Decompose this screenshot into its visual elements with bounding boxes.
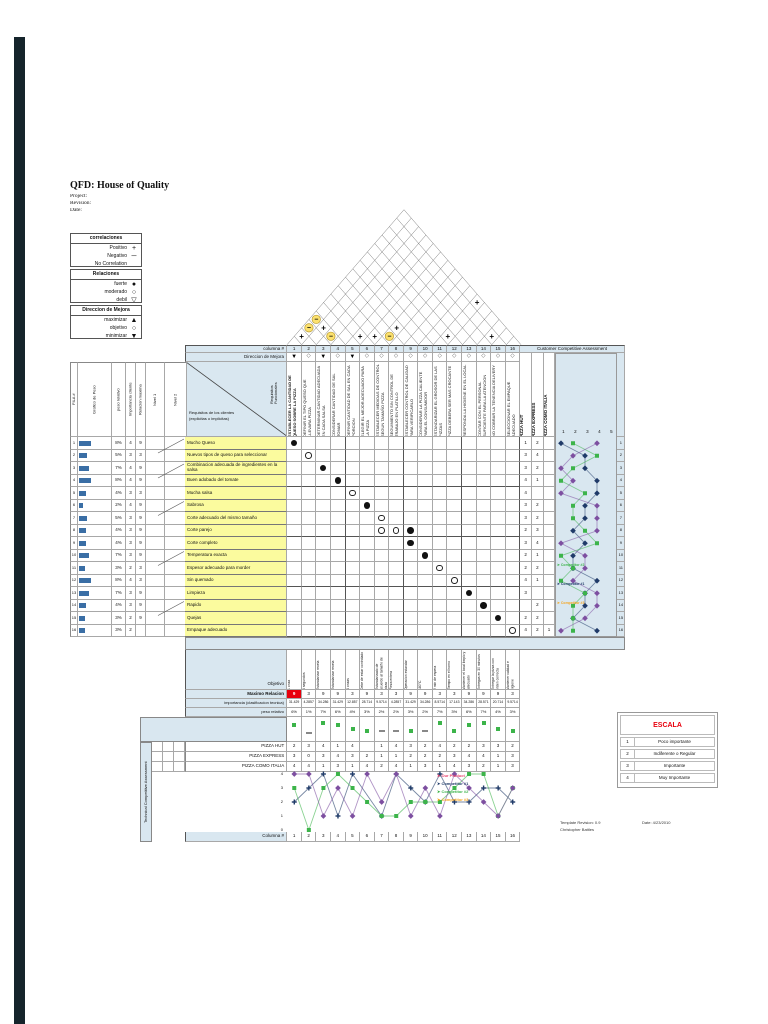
matrix-cell [331, 500, 346, 513]
matrix-cell [346, 525, 361, 538]
matrix-cell [346, 475, 361, 488]
tca-value-cell: 2 [375, 762, 390, 772]
matrix-cell [477, 612, 492, 625]
cca-hut-cell: 4 [520, 575, 532, 588]
direccion-header-label: Direccion de Mejora [185, 353, 287, 362]
matrix-cell [360, 487, 375, 500]
direction-of-improvement-cell: ▼ [316, 353, 331, 362]
tca-strip: Technical Competitive Assessment [140, 742, 152, 842]
relacion-maxima-cell: 9 [136, 437, 146, 450]
svg-text:+: + [490, 332, 495, 341]
requisito-column-title: SEGUIMIENTO SIN CONTROL DE TRABAJO EN PL… [389, 362, 403, 437]
peso-bar-cell [78, 537, 112, 550]
legend-symbol-icon: ─ [130, 253, 138, 260]
weight-dash-icon [393, 730, 399, 732]
cca-express-cell [532, 587, 544, 600]
moderate-relationship-icon [436, 565, 443, 572]
matrix-cell [404, 587, 419, 600]
strong-relationship-icon [422, 552, 429, 559]
weight-dash-icon [379, 730, 385, 732]
tca-value-cell: 3 [418, 762, 433, 772]
requisito-column-title: DEFINIR EL TIPO QUESO QUE LLEVARA PIZZA [302, 362, 316, 437]
cca-italia-cell [544, 537, 556, 550]
matrix-cell [346, 550, 361, 563]
matrix-cell [287, 612, 302, 625]
matrix-cell [375, 450, 390, 463]
left-header-label: FILA # [71, 363, 77, 436]
objetivo-cell: Tiempo en el horno [447, 650, 462, 690]
matrix-cell [418, 600, 433, 613]
importancia-cell: 4 [126, 575, 136, 588]
matrix-cell [477, 575, 492, 588]
tca-row-label: PIZZA EXPRESS [185, 752, 287, 762]
escala-row: 3Importante [620, 761, 715, 771]
tca-value-cell: 3 [346, 752, 361, 762]
matrix-cell [302, 587, 317, 600]
columna-number-cell: 1 [287, 345, 302, 353]
matrix-cell [346, 462, 361, 475]
matrix-cell [375, 600, 390, 613]
matrix-cell [331, 537, 346, 550]
fila-number-cell: 10 [70, 550, 78, 563]
technical-chart-ytick: 4 [272, 771, 285, 777]
tca-value-cell: 2 [418, 752, 433, 762]
requisito-column-header: NO COBRAR LA TENENCIA DELIVERY [491, 362, 506, 437]
objetivo-text: Entregar la pizza con orden correcta [491, 650, 505, 690]
matrix-cell [316, 500, 331, 513]
importancia-tecnica-cell: 17.143 [447, 699, 462, 708]
fila-number-cell: 14 [70, 600, 78, 613]
fila-number-cell: 11 [70, 562, 78, 575]
requisito-column-header: DEFINIR EL TIPO QUESO QUE LLEVARA PIZZA [302, 362, 317, 437]
matrix-cell [346, 562, 361, 575]
matrix-cell [302, 462, 317, 475]
matrix-cell [447, 487, 462, 500]
matrix-cell [447, 450, 462, 463]
cca-express-cell: 4 [532, 537, 544, 550]
importancia-tecnica-cell: 20.714 [491, 699, 506, 708]
matrix-cell [404, 512, 419, 525]
cca-hut-cell: 3 [520, 512, 532, 525]
relacion-maxima-cell: 3 [136, 562, 146, 575]
weight-marker-icon [365, 729, 369, 733]
relacion-maxima-cell: 9 [136, 500, 146, 513]
matrix-cell [346, 450, 361, 463]
matrix-cell [346, 500, 361, 513]
importancia-tecnica-cell: 4.2857 [389, 699, 404, 708]
tca-value-cell: 3 [302, 742, 317, 752]
footer-revision: Template Revision: 0.9 [560, 821, 630, 827]
matrix-cell [418, 587, 433, 600]
fila-right-cell: 9 [617, 537, 625, 550]
tca-value-cell: 3 [506, 762, 521, 772]
customer-requirement-cell: Rapido [185, 600, 287, 613]
tca-spacer-cell [163, 752, 174, 762]
customer-requirement-cell: Sin quemado [185, 575, 287, 588]
peso-bar [79, 478, 91, 483]
roof-correlation-matrix: +−−+−++−++++ [287, 208, 521, 346]
weight-marker-icon [467, 723, 471, 727]
columna-number-cell: 6 [360, 345, 375, 353]
matrix-cell [331, 575, 346, 588]
legend-item: minimizar▼ [71, 332, 141, 339]
matrix-cell [331, 487, 346, 500]
tca-value-cell: 3 [287, 752, 302, 762]
direction-of-improvement-cell: ◇ [447, 353, 462, 362]
peso-bar [79, 553, 89, 558]
matrix-cell [360, 625, 375, 638]
columna-header-text: columna # [263, 347, 284, 352]
fila-number-cell: 2 [70, 450, 78, 463]
left-header-label: Nivel 2 [165, 363, 186, 436]
customer-requirement-cell: Buen adobado del tomate [185, 475, 287, 488]
importancia-tecnica-cell: 31.429 [287, 699, 302, 708]
peso-bar-cell [78, 562, 112, 575]
weight-marker-icon [482, 721, 486, 725]
legend-direccion-mejora: Direccion de Mejora maximizar▲objetivo○m… [70, 305, 142, 339]
project-label: Project: [70, 194, 170, 201]
scale-tick: 2 [571, 428, 579, 436]
fila-right-cell: 16 [617, 625, 625, 638]
escala-value: 4 [620, 773, 635, 783]
svg-text:−: − [315, 316, 319, 323]
matrix-cell [316, 587, 331, 600]
requisito-column-header: ESTABLECER CONTROL DE CALIDAD PARA VERIF… [404, 362, 419, 437]
maximo-relacion-cell: 9 [331, 690, 346, 699]
tca-value-cell: 3 [447, 752, 462, 762]
cca-express-cell [532, 487, 544, 500]
customer-column-title: PIZZA COMO ITALIA [544, 353, 555, 437]
importancia-tecnica-cell: 9.5714 [375, 699, 390, 708]
cca-header-text: Customer Competitive Assessment [537, 347, 607, 352]
left-header-cell: Nivel 1 [146, 362, 165, 437]
objetivo-text: Operacion estandar [404, 650, 418, 690]
relacion-maxima-cell: 9 [136, 600, 146, 613]
columna-number-cell: 15 [491, 345, 506, 353]
legend-item: Positivo+ [71, 244, 141, 252]
columna-number-cell: 13 [462, 345, 477, 353]
grafico-peso-cell [404, 717, 419, 742]
tca-value-cell: 4 [302, 762, 317, 772]
maximo-relacion-label: Maximo Relacion [185, 690, 287, 699]
customer-chart-legend-item: ➤ Competitor #3 [557, 601, 587, 617]
escala-box: ESCALA 1Poco importante2Indiferente o Re… [617, 712, 718, 788]
customer-requirement-cell: Temperatura exacta [185, 550, 287, 563]
matrix-cell [506, 487, 521, 500]
columna-number-cell: 11 [433, 345, 448, 353]
matrix-cell [433, 487, 448, 500]
objetivo-cell: 6 segundos [302, 650, 317, 690]
requisito-column-header: CONTAR CON EL PERSONAL SUFICIENTE PARA L… [477, 362, 492, 437]
matrix-cell [389, 475, 404, 488]
peso-relativo-cell: 4% [112, 525, 126, 538]
grafico-peso-cell [360, 717, 375, 742]
fila-number-cell: 7 [70, 512, 78, 525]
revision-label: Revision: [70, 201, 170, 208]
matrix-cell [360, 525, 375, 538]
tca-value-cell [360, 742, 375, 752]
customer-requirement-cell: Espesor adecuado para morder [185, 562, 287, 575]
peso-bar-cell [78, 437, 112, 450]
objetivo-cell: Mantener el local limpio y adecuado [462, 650, 477, 690]
matrix-cell [491, 475, 506, 488]
fila-right-cell: 11 [617, 562, 625, 575]
escala-row: 2Indiferente o Regular [620, 749, 715, 759]
matrix-cell [316, 512, 331, 525]
grafico-peso-cell [462, 717, 477, 742]
matrix-cell [346, 512, 361, 525]
matrix-cell [360, 537, 375, 550]
matrix-cell [331, 462, 346, 475]
tca-spacer-cell [163, 742, 174, 752]
left-header-cell: Nivel 2 [165, 362, 187, 437]
matrix-cell [462, 600, 477, 613]
customer-column-header: PIZZA EXPRESS [532, 353, 544, 437]
matrix-cell [360, 475, 375, 488]
cca-express-cell: 3 [532, 525, 544, 538]
relacion-maxima-cell: 3 [136, 575, 146, 588]
relacion-maxima-cell: 9 [136, 462, 146, 475]
legend-item: No Correlation [71, 260, 141, 267]
matrix-cell [433, 537, 448, 550]
peso-bar-cell [78, 512, 112, 525]
matrix-cell [302, 450, 317, 463]
requisito-column-header: CONSIDERAR LA PIZZA CALIENTE PARA EL CON… [418, 362, 433, 437]
requisito-column-header: ELEGIR EL MEJOR ADECUADO PARA LA PIZZA [360, 362, 375, 437]
matrix-cell [433, 475, 448, 488]
matrix-cell [302, 600, 317, 613]
cca-express-cell: 1 [532, 575, 544, 588]
peso-bar-cell [78, 612, 112, 625]
relacion-maxima-cell: 9 [136, 475, 146, 488]
objetivo-cell: Estandarizar receta [331, 650, 346, 690]
left-header-label: Nivel 1 [146, 363, 164, 436]
peso-relativo-cell: 8% [112, 437, 126, 450]
matrix-cell [287, 450, 302, 463]
weight-marker-icon [409, 729, 413, 733]
fila-right-cell: 12 [617, 575, 625, 588]
grafico-peso-cell [491, 717, 506, 742]
moderate-relationship-icon [378, 515, 385, 522]
svg-text:+: + [395, 323, 400, 332]
legend-symbol-icon: ○ [130, 289, 138, 296]
legend-item: moderado○ [71, 288, 141, 296]
matrix-cell [404, 537, 419, 550]
matrix-cell [375, 475, 390, 488]
peso-relativo-cell: 7% [112, 462, 126, 475]
matrix-cell [433, 587, 448, 600]
matrix-cell [462, 550, 477, 563]
matrix-cell [447, 612, 462, 625]
matrix-cell [477, 462, 492, 475]
objetivo-cell: Mantener calidad e higiene [506, 650, 521, 690]
matrix-cell [302, 550, 317, 563]
columna-number-cell: 8 [389, 345, 404, 353]
objetivo-cell: 180°C [418, 650, 433, 690]
legend-symbol-icon: ▽ [130, 297, 138, 304]
peso-bar-cell [78, 550, 112, 563]
legend-symbol-icon: + [130, 245, 138, 252]
peso-bar-cell [78, 587, 112, 600]
requisito-column-title: CONSIDERAR CANTIDAD DE SAL TOMAR [331, 362, 345, 437]
strong-relationship-icon [407, 540, 414, 547]
escala-label: Poco importante [635, 737, 715, 747]
peso-bar-cell [78, 625, 112, 638]
tca-value-cell: 2 [287, 742, 302, 752]
cca-express-cell: 2 [532, 600, 544, 613]
matrix-cell [287, 537, 302, 550]
matrix-cell [404, 550, 419, 563]
footer-author: Christopher Battles [560, 828, 630, 834]
legend-item: maximizar▲ [71, 316, 141, 324]
matrix-cell [331, 587, 346, 600]
matrix-cell [491, 487, 506, 500]
matrix-cell [477, 475, 492, 488]
technical-chart-legend-item: ➤ Competitor #3 [437, 798, 482, 805]
matrix-cell [287, 512, 302, 525]
maximo-relacion-cell: 9 [287, 690, 302, 699]
peso-relativo-label: peso relativo [185, 708, 287, 717]
fila-right-header [617, 353, 625, 437]
cca-express-cell: 1 [532, 475, 544, 488]
matrix-cell [360, 550, 375, 563]
peso-relativo-cell: 3% [112, 612, 126, 625]
cca-italia-cell [544, 475, 556, 488]
peso-relativo-bottom-cell: 3% [404, 708, 419, 717]
viewer-edge-bar [14, 37, 25, 1024]
customer-column-header: PIZZA COMO ITALIA [544, 353, 556, 437]
importancia-cell: 3 [126, 450, 136, 463]
matrix-cell [302, 475, 317, 488]
matrix-cell [447, 550, 462, 563]
customer-requirement-cell: Mucha salsa [185, 487, 287, 500]
peso-relativo-bottom-cell: 3% [360, 708, 375, 717]
matrix-cell [316, 562, 331, 575]
matrix-cell [477, 437, 492, 450]
matrix-cell [462, 562, 477, 575]
matrix-cell [506, 462, 521, 475]
relacion-maxima-cell: 9 [136, 612, 146, 625]
direction-of-improvement-cell: ◇ [418, 353, 433, 362]
matrix-cell [375, 550, 390, 563]
legend-correlaciones: correlaciones Positivo+Negativo─No Corre… [70, 233, 142, 267]
tca-value-cell: 2 [360, 752, 375, 762]
weight-marker-icon [321, 721, 325, 725]
peso-bar [79, 541, 86, 546]
peso-relativo-bottom-cell: 3% [506, 708, 521, 717]
columna-number-cell: 4 [331, 345, 346, 353]
relacion-maxima-cell: 9 [136, 537, 146, 550]
moderate-relationship-icon [451, 577, 458, 584]
cca-hut-cell: 3 [520, 500, 532, 513]
matrix-cell [462, 462, 477, 475]
matrix-cell [462, 575, 477, 588]
tca-value-cell: 1 [491, 752, 506, 762]
matrix-cell [331, 525, 346, 538]
requisito-column-title: DETERMINAR CANTIDAD ADECUADA EN CADA SAL… [316, 362, 330, 437]
matrix-cell [447, 437, 462, 450]
matrix-cell [477, 600, 492, 613]
matrix-cell [477, 537, 492, 550]
matrix-cell [433, 600, 448, 613]
matrix-cell [360, 587, 375, 600]
matrix-cell [447, 625, 462, 638]
legend-symbol-icon: ○ [130, 325, 138, 332]
matrix-cell [404, 525, 419, 538]
peso-relativo-cell: 7% [112, 587, 126, 600]
matrix-cell [360, 575, 375, 588]
svg-text:−: − [388, 333, 392, 340]
cca-italia-cell [544, 512, 556, 525]
grafico-peso-cell [477, 717, 492, 742]
columna-number-cell: 10 [418, 345, 433, 353]
tca-label: Technical Competitive Assessment [141, 743, 151, 841]
technical-chart-ytick: 0 [272, 827, 285, 833]
requisito-column-title: ELEGIR EL MEJOR ADECUADO PARA LA PIZZA [360, 362, 374, 437]
objetivo-cell: 3 onzas [346, 650, 361, 690]
matrix-cell [287, 500, 302, 513]
cca-express-cell: 2 [532, 512, 544, 525]
grafico-peso-cell [302, 717, 317, 742]
svg-text:+: + [475, 298, 480, 307]
tca-spacer-cell [174, 742, 185, 752]
relacion-maxima-cell: 9 [136, 525, 146, 538]
fila-right-cell: 1 [617, 437, 625, 450]
customer-requirement-cell: Sabrosa [185, 500, 287, 513]
cca-hut-cell: 3 [520, 462, 532, 475]
matrix-cell [433, 575, 448, 588]
weight-marker-icon [452, 729, 456, 733]
tca-value-cell: 1 [433, 762, 448, 772]
fila-right-cell: 3 [617, 462, 625, 475]
matrix-cell [346, 600, 361, 613]
direction-of-improvement-cell: ◇ [389, 353, 404, 362]
importancia-cell: 4 [126, 437, 136, 450]
requisito-column-title: ESTABLECER MEDIDAS DE CONTROL SEGUN TAMA… [375, 362, 389, 437]
importancia-cell: 2 [126, 562, 136, 575]
strong-relationship-icon [495, 615, 502, 622]
technical-chart-ytick: 3 [272, 785, 285, 791]
tca-value-cell: 4 [331, 752, 346, 762]
cca-express-cell: 4 [532, 450, 544, 463]
tca-spacer-cell [152, 742, 163, 752]
matrix-cell [389, 587, 404, 600]
peso-bar [79, 516, 87, 521]
grafico-peso-cell [331, 717, 346, 742]
matrix-cell [360, 500, 375, 513]
relacion-maxima-cell [136, 625, 146, 638]
qfd-document-page: QFD: House of Quality Project: Revision:… [0, 0, 768, 1024]
matrix-cell [302, 512, 317, 525]
cca-express-cell: 2 [532, 612, 544, 625]
matrix-cell [462, 537, 477, 550]
matrix-cell [491, 437, 506, 450]
matrix-cell [389, 612, 404, 625]
matrix-cell [375, 487, 390, 500]
matrix-cell [477, 525, 492, 538]
matrix-cell [477, 625, 492, 638]
scale-tick: 3 [583, 428, 591, 436]
matrix-cell [375, 462, 390, 475]
grafico-peso-cell [389, 717, 404, 742]
tca-value-cell: 2 [462, 742, 477, 752]
left-header-cell: Relacion maxima [136, 362, 146, 437]
technical-competitive-chart [287, 772, 520, 834]
matrix-cell [346, 587, 361, 600]
tca-value-cell: 3 [506, 752, 521, 762]
requisito-column-header: SEGUIMIENTO SIN CONTROL DE TRABAJO EN PL… [389, 362, 404, 437]
peso-bar [79, 628, 85, 633]
